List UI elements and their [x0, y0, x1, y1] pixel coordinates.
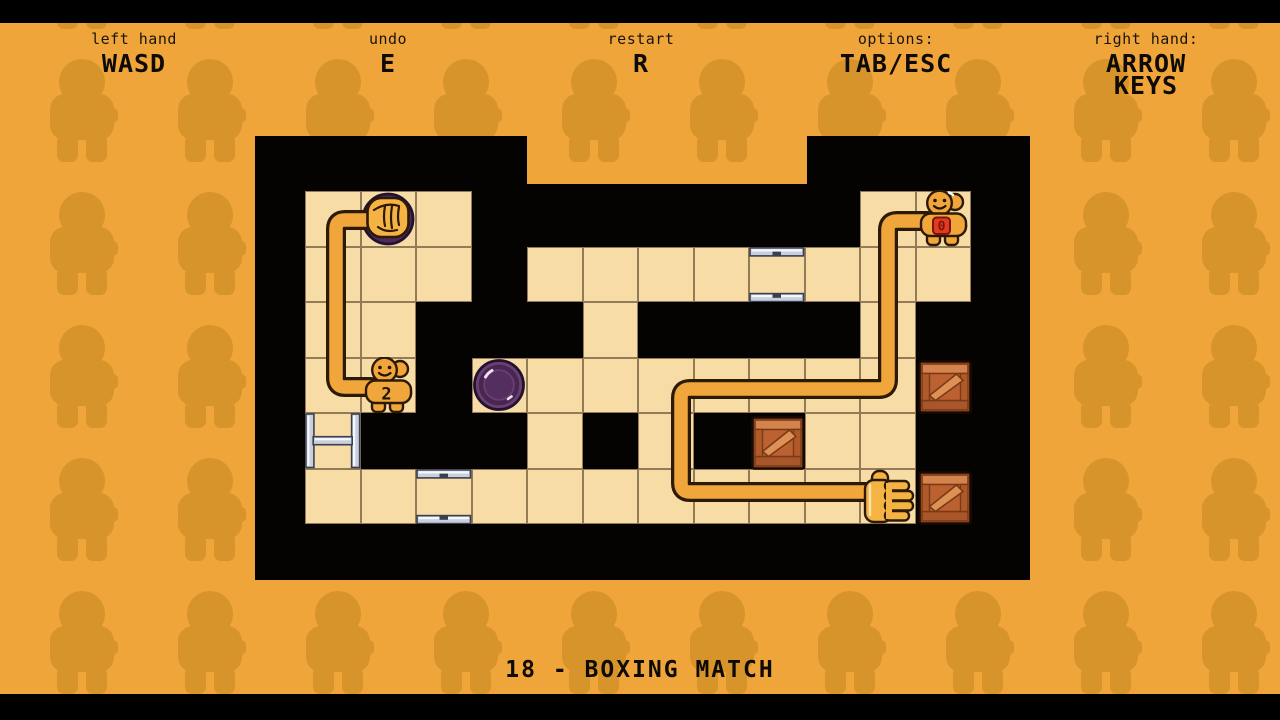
- floor-tile: [361, 358, 417, 414]
- floor-tile: [860, 302, 916, 358]
- level-title: 18 - BOXING MATCH: [0, 657, 1280, 683]
- rail-tile-top-bottom: [416, 469, 472, 529]
- floor-tile: [527, 469, 583, 525]
- floor-tile: [916, 247, 972, 303]
- floor-tile: [583, 247, 639, 303]
- game-screen: 0 2 left handWASDundoErestartRoptions:TA…: [0, 0, 1280, 720]
- floor-tile: [416, 247, 472, 303]
- floor-tile: [805, 247, 861, 303]
- control-label-undo: undo: [268, 30, 508, 48]
- floor-tile: [416, 191, 472, 247]
- control-keys-restart: R: [521, 53, 761, 75]
- floor-tile: [583, 302, 639, 358]
- floor-tile: [361, 247, 417, 303]
- floor-tile: [361, 302, 417, 358]
- floor-tile: [749, 469, 805, 525]
- floor-tile: [694, 469, 750, 525]
- floor-tile: [583, 358, 639, 414]
- floor-tile: [805, 358, 861, 414]
- floor-tile: [305, 469, 361, 525]
- button-pressed: [361, 192, 415, 250]
- floor-tile: [305, 302, 361, 358]
- control-undo: undoE: [268, 30, 508, 75]
- control-left-hand: left handWASD: [14, 30, 254, 75]
- floor-tile: [860, 469, 916, 525]
- floor-tile: [805, 469, 861, 525]
- floor-tile: [860, 413, 916, 469]
- button-raised: [472, 358, 526, 416]
- floor-tile: [860, 358, 916, 414]
- control-options: options:TAB/ESC: [776, 30, 1016, 75]
- control-keys-left-hand: WASD: [14, 53, 254, 75]
- floor-tile: [749, 358, 805, 414]
- letterbox-bottom: [0, 694, 1280, 720]
- floor-tile: [583, 469, 639, 525]
- floor-tile: [860, 191, 916, 247]
- floor-tile: [694, 358, 750, 414]
- floor-tile: [472, 469, 528, 525]
- floor-tile: [805, 413, 861, 469]
- floor-tile: [638, 247, 694, 303]
- floor-tile: [638, 413, 694, 469]
- control-label-restart: restart: [521, 30, 761, 48]
- floor-tile: [527, 358, 583, 414]
- control-label-right-hand: right hand:: [1026, 30, 1266, 48]
- floor-tile: [305, 191, 361, 247]
- control-keys-options: TAB/ESC: [776, 53, 1016, 75]
- letterbox-top: [0, 0, 1280, 23]
- floor-tile: [527, 413, 583, 469]
- floor-tile: [694, 247, 750, 303]
- floor-tile: [305, 358, 361, 414]
- rail-tile-sides: [305, 413, 361, 473]
- control-right-hand: right hand:ARROW KEYS: [1026, 30, 1266, 97]
- floor-tile: [916, 191, 972, 247]
- control-keys-right-hand: ARROW KEYS: [1026, 53, 1266, 97]
- floor-tile: [527, 247, 583, 303]
- floor-tile: [361, 469, 417, 525]
- floor-tile: [638, 358, 694, 414]
- rail-tile-top-bottom: [749, 247, 805, 307]
- control-restart: restartR: [521, 30, 761, 75]
- floor-tile: [860, 247, 916, 303]
- floor-tile: [638, 469, 694, 525]
- control-label-left-hand: left hand: [14, 30, 254, 48]
- control-keys-undo: E: [268, 53, 508, 75]
- floor-tile: [305, 247, 361, 303]
- control-label-options: options:: [776, 30, 1016, 48]
